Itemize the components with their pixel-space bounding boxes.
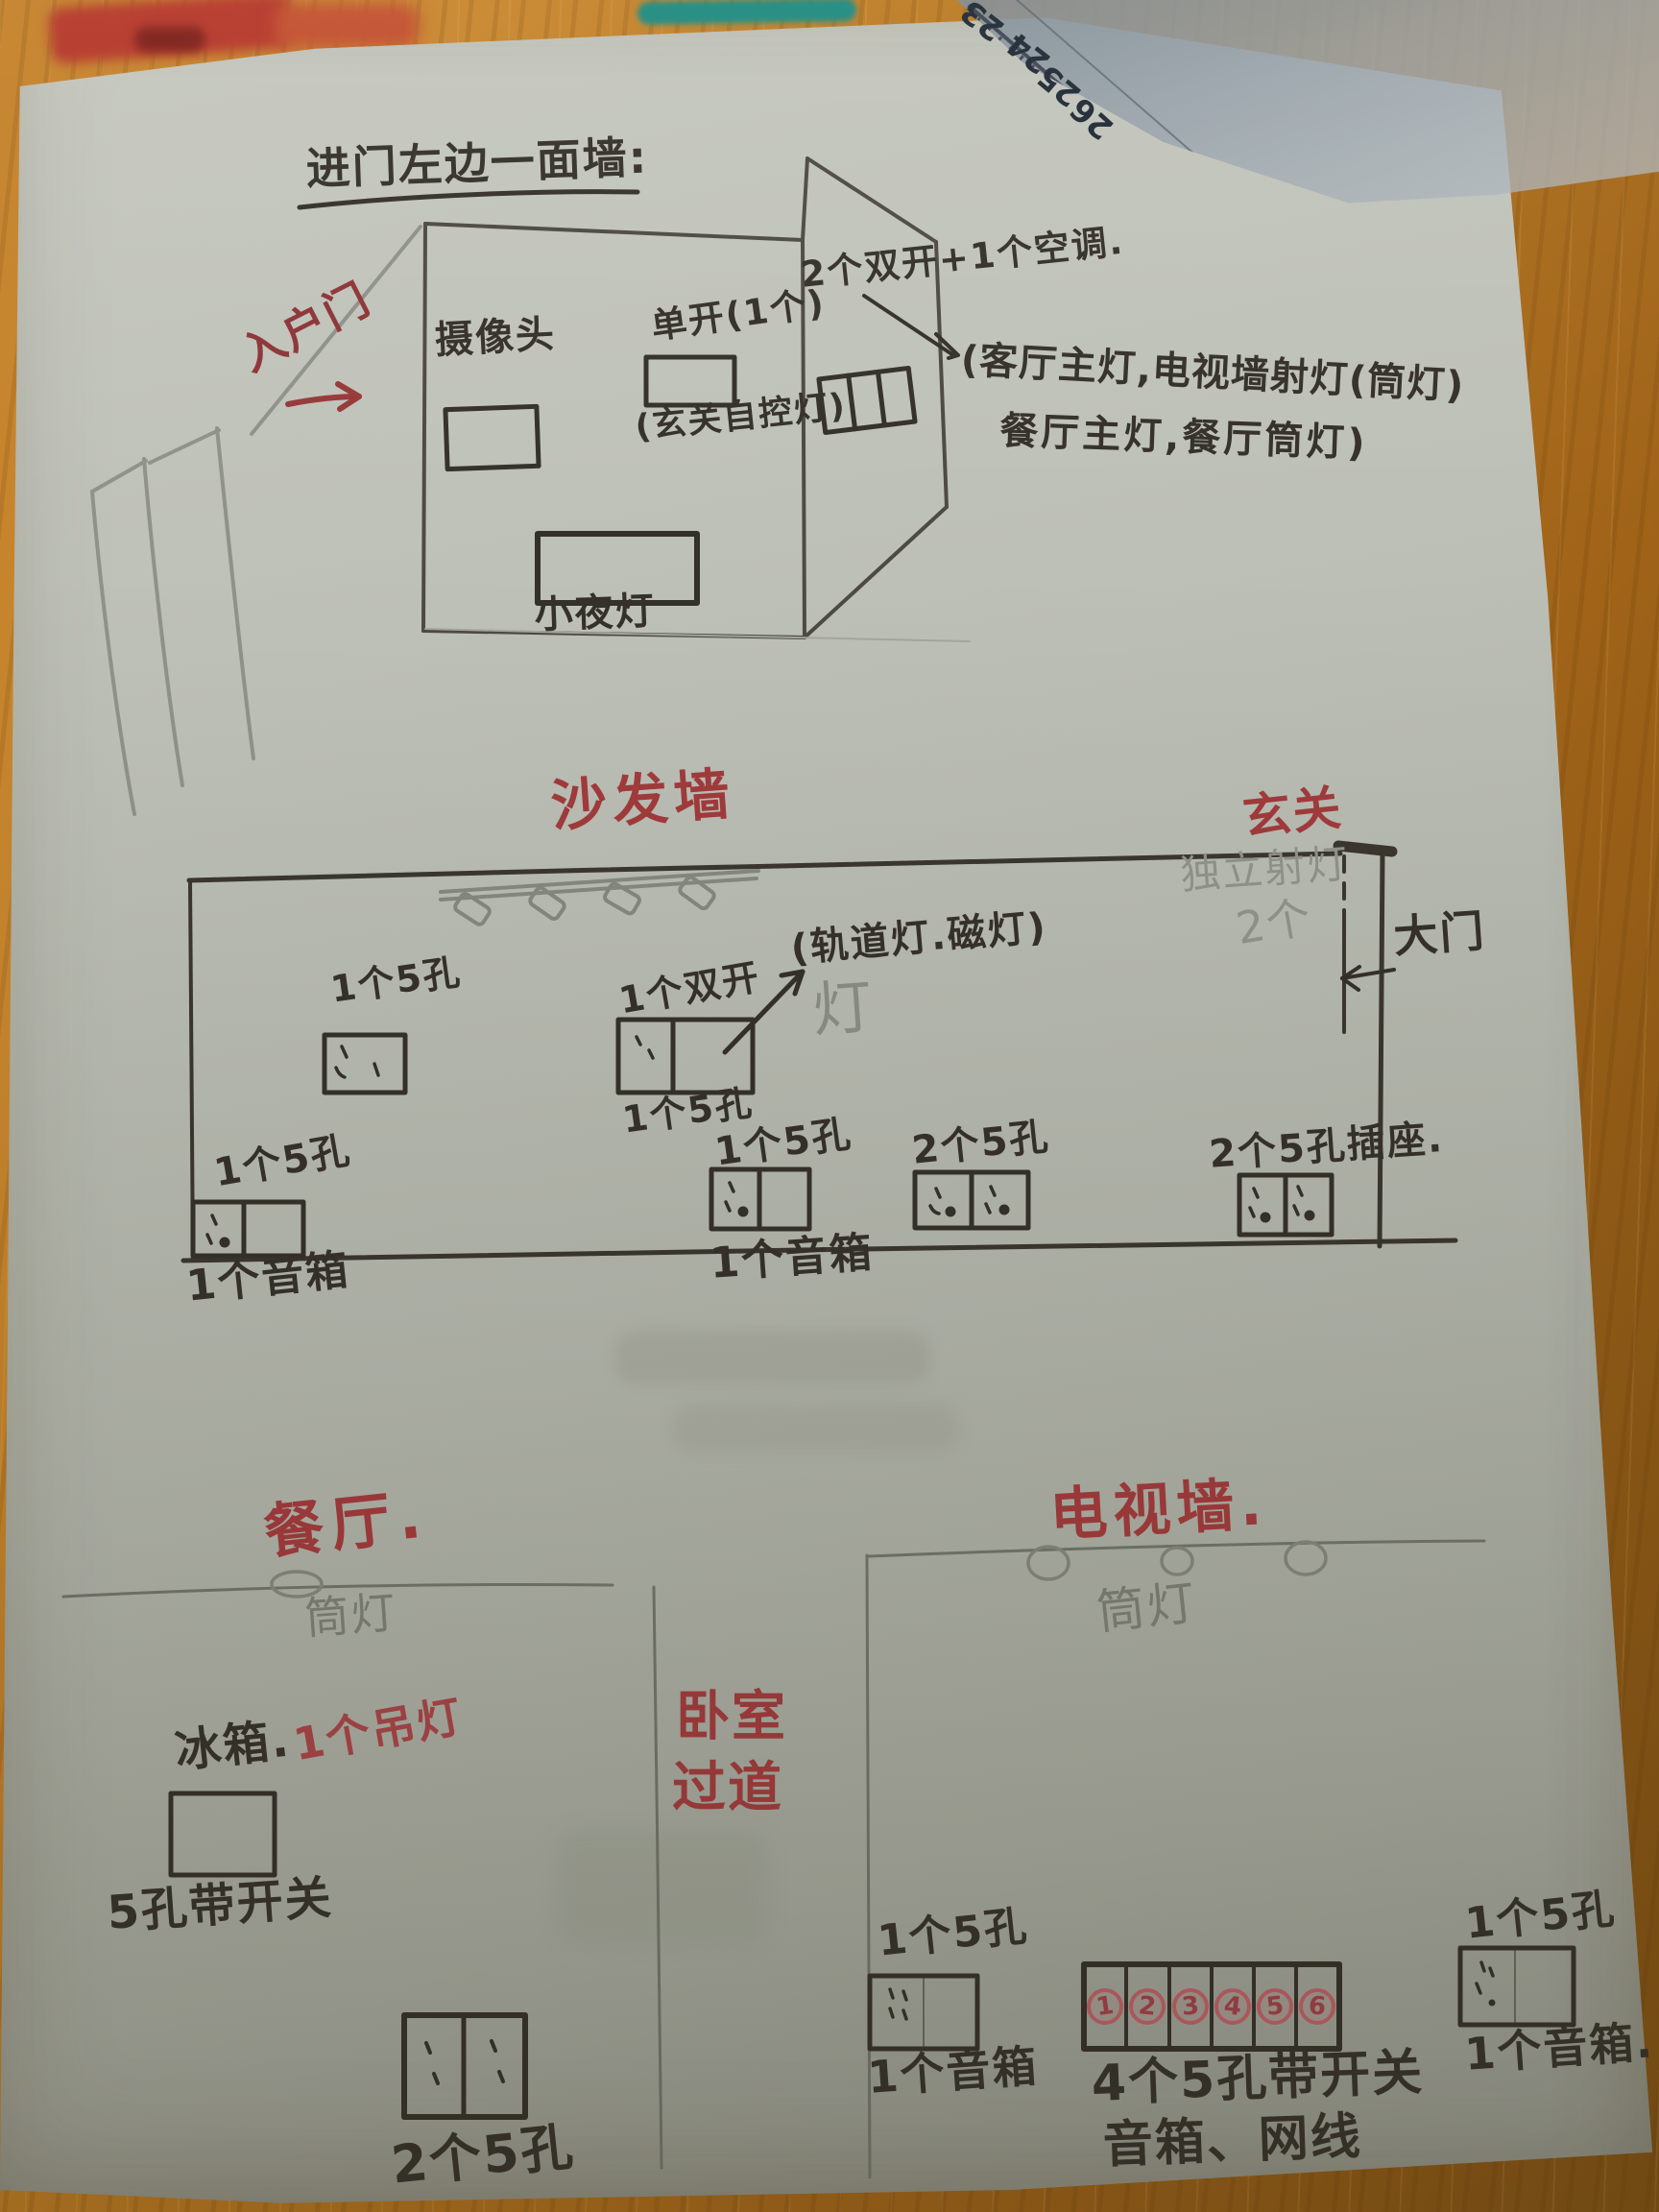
entry-arrow: [288, 384, 359, 409]
annotation-lines: [864, 296, 958, 358]
corridor-label-2: 过道: [672, 1761, 783, 1817]
main-door-label: 大门: [1392, 907, 1487, 960]
corridor-label-1: 卧室: [676, 1690, 787, 1746]
socket-number-6: 6: [1298, 1987, 1335, 2025]
tv-wall-title: 电视墙.: [1048, 1475, 1269, 1547]
wall-outline: [423, 158, 947, 637]
right-speaker-label: 1个音箱.: [1463, 2018, 1655, 2078]
title-underline: [300, 192, 637, 207]
socket-number-2: 2: [1128, 1987, 1166, 2026]
photo-of-hand-drawn-wiring-sketch: 进门左边一面墙: 入户门 摄像头 单开(1个) (玄关自控灯) 2个双开+1个空…: [0, 0, 1659, 2212]
track-light-sketch: [441, 871, 758, 926]
main-door-arrow: [1342, 967, 1394, 990]
night-light-label: 小夜灯: [534, 591, 656, 636]
socket-box: [325, 1035, 405, 1093]
socket-number-3: 3: [1171, 1987, 1209, 2025]
tv-socket-note1: 4个5孔带开关: [1091, 2047, 1425, 2111]
camera-box: [445, 406, 539, 469]
socket-number-4: 4: [1214, 1987, 1252, 2026]
downlight-dining-label: 筒灯: [303, 1589, 398, 1642]
dining-title: 餐厅.: [261, 1484, 431, 1564]
sofa-wall-title: 沙发墙: [549, 765, 737, 836]
socket-speaker-box: [193, 1202, 303, 1256]
pencil-guide-line: [425, 629, 970, 641]
corridor-speaker-label: 1个音箱: [866, 2043, 1040, 2102]
single-switch-box: [646, 357, 734, 405]
light-ghost-label: 灯: [810, 975, 876, 1042]
socket-number-1: 1: [1086, 1987, 1125, 2027]
camera-label: 摄像头: [434, 314, 557, 361]
socket-number-5: 5: [1256, 1987, 1294, 2026]
double-switch-box: [618, 1020, 753, 1093]
fridge-label: 冰箱.: [173, 1716, 293, 1776]
downlight-tv-label: 筒灯: [1094, 1577, 1199, 1638]
tv-socket-note2: 音箱、网线: [1102, 2111, 1363, 2173]
foyer-title: 玄关: [1240, 782, 1345, 843]
page-title: 进门左边一面墙:: [305, 134, 649, 193]
independent-spotlight-count: 2个: [1233, 893, 1315, 951]
speaker-bm-label: 1个音箱: [709, 1231, 875, 1286]
fridge-box: [171, 1793, 275, 1875]
